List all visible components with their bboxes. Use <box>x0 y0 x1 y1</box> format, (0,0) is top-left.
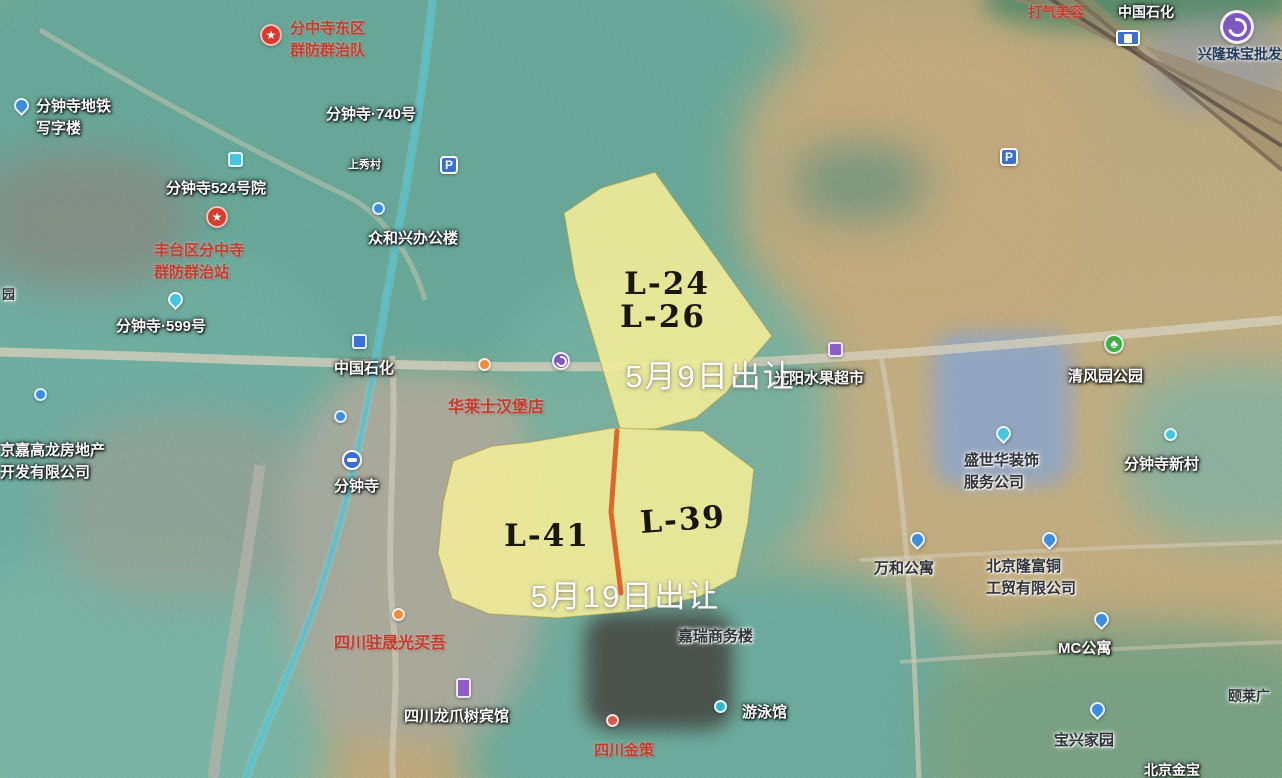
poi-sinopec-west-label: 中国石化 <box>334 358 394 380</box>
poi-yilai-plaza-label: 颐莱广 <box>1228 686 1270 706</box>
poi-beijing-jinbao-label: 北京金宝 <box>1144 760 1200 778</box>
parking-icon: P <box>440 156 458 174</box>
tree-icon: ♣ <box>1104 334 1124 354</box>
star-icon: ★ <box>206 206 228 228</box>
roadbadge-icon <box>342 450 362 470</box>
parcel-code-l24: L-24 <box>602 266 732 302</box>
poi-xinglong-jewelry-label: 兴隆珠宝批发 <box>1198 44 1282 64</box>
pin-icon <box>993 423 1014 444</box>
square-icon <box>228 152 243 167</box>
poi-longzhuashu-hotel-label: 四川龙爪树宾馆 <box>404 706 509 728</box>
poi-mc-apartment-label: MC公寓 <box>1058 638 1111 660</box>
poi-fenzhongsi-599-label: 分钟寺·599号 <box>116 316 206 338</box>
poi-fenzhongsi-xincun-label: 分钟寺新村 <box>1124 454 1199 476</box>
pin-icon <box>165 289 186 310</box>
poi-sinopec-ne-label: 中国石化 <box>1118 2 1174 22</box>
pin-icon <box>1091 609 1112 630</box>
poi-sichuan-zhusheng-label: 四川驻晟光买吾 <box>334 632 446 655</box>
poi-daqi-beauty-label: 打气美容 <box>1028 2 1084 22</box>
poi-longfutong-label: 北京隆富铜工贸有限公司 <box>986 556 1076 600</box>
dot-icon <box>1164 428 1177 441</box>
poi-swimming-pool-label: 游泳馆 <box>742 702 787 724</box>
poi-fenzhongsi-740-label: 分钟寺·740号 <box>326 104 416 126</box>
poi-shangxiu-label: 上秀村 <box>348 158 381 174</box>
parcel-code-l26: L-26 <box>598 299 728 335</box>
poi-sichuan-jince-label: 四川金策 <box>594 740 654 762</box>
metro-icon <box>1220 10 1254 44</box>
rect-icon <box>456 678 471 698</box>
gas-icon <box>1116 30 1140 46</box>
satellite-map[interactable]: 分钟寺地铁写字楼★分中寺东区群防群治队分钟寺·740号分钟寺524号院★丰台区分… <box>0 0 1282 778</box>
transfer-date-label-1: 5月9日出让 <box>568 351 853 396</box>
poi-fenzhongsi-label: 分钟寺 <box>334 476 379 498</box>
poi-community-team-label: 分中寺东区群防群治队 <box>290 18 365 62</box>
poi-jiarui-business-label: 嘉瑞商务楼 <box>678 626 753 648</box>
poi-fenzhongsi-metro-tower-label: 分钟寺地铁写字楼 <box>36 96 111 140</box>
poi-jingjia-gaolong-label: 京嘉高龙房地产开发有限公司 <box>0 440 105 484</box>
pin-icon <box>1039 529 1060 550</box>
pin-icon <box>1087 699 1108 720</box>
dot-icon <box>392 608 405 621</box>
dot-icon <box>714 700 727 713</box>
poi-qingfengyuan-park-label: 清风园公园 <box>1068 366 1143 388</box>
parking-icon: P <box>1000 148 1018 166</box>
poi-wanhe-apartment-label: 万和公寓 <box>874 558 934 580</box>
poi-fenzhongsi-524-label: 分钟寺524号院 <box>166 178 266 200</box>
dot-icon <box>606 714 619 727</box>
poi-wallace-burger-label: 华莱士汉堡店 <box>448 396 544 419</box>
pin-icon <box>11 95 32 116</box>
poi-fengtai-station-label: 丰台区分中寺群防群治站 <box>154 240 244 284</box>
dot-icon <box>478 358 491 371</box>
star-icon: ★ <box>260 24 282 46</box>
poi-shengshihua-deco-label: 盛世华装饰服务公司 <box>964 450 1039 494</box>
dot-icon <box>34 388 47 401</box>
poi-zhonghexing-office-label: 众和兴办公楼 <box>368 228 458 250</box>
poi-partial-yuan-label: 园 <box>2 286 15 305</box>
parcel-code-l41: L-41 <box>482 518 612 554</box>
square-icon <box>352 334 367 349</box>
dot-icon <box>334 410 347 423</box>
pin-icon <box>907 529 928 550</box>
dot-icon <box>372 202 385 215</box>
poi-baoxing-home-label: 宝兴家园 <box>1054 730 1114 752</box>
transfer-date-label-2: 5月19日出让 <box>488 571 763 616</box>
